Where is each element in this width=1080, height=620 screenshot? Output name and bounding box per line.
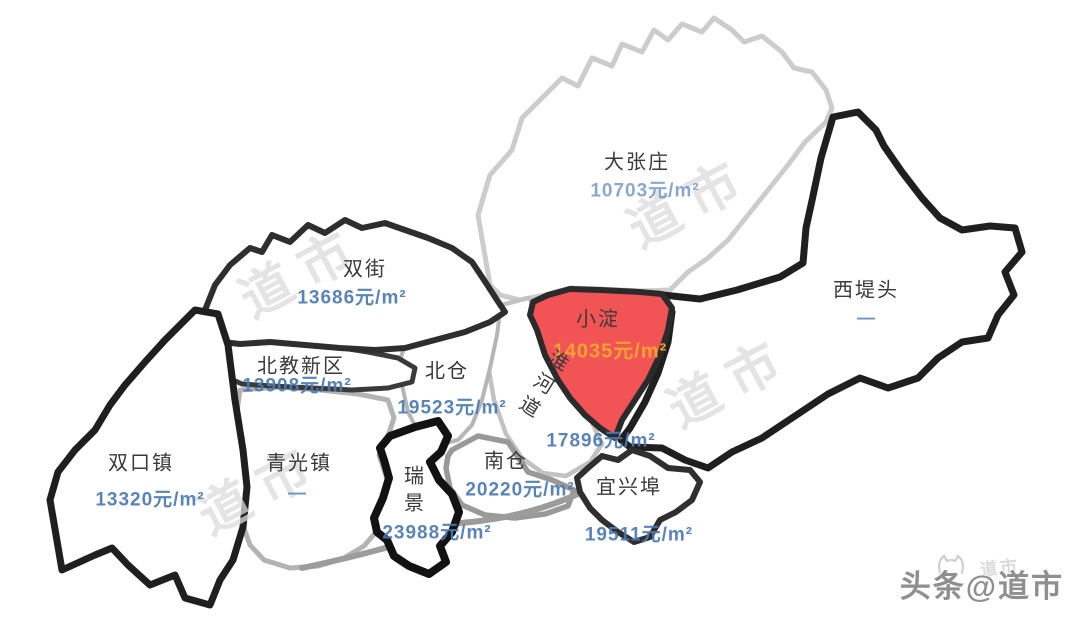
region-qingguangzhen <box>233 387 394 568</box>
attribution-label: 头条@道市 <box>900 561 1064 606</box>
region-dazhangzhuang <box>478 18 832 300</box>
district-map <box>0 0 1080 620</box>
price-map-canvas: 道市 道市 道市 道市 大张庄 10703元/m² 双街 13686元/m² 西… <box>0 0 1080 620</box>
region-ruijing <box>374 421 459 574</box>
region-shuangjie <box>205 220 505 350</box>
region-yixingbu <box>577 450 700 542</box>
region-shuangkouzhen <box>50 310 247 605</box>
